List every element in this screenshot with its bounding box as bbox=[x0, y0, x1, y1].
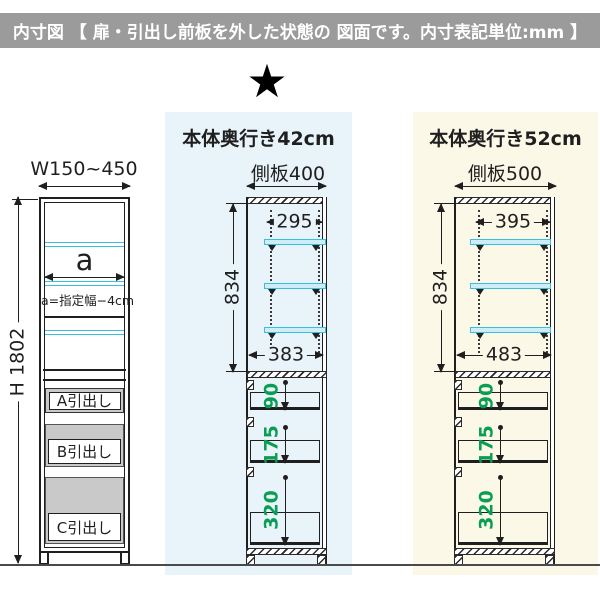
depth42-shelf-2 bbox=[264, 283, 326, 289]
depth42-inner-top-dim: 295 bbox=[267, 222, 322, 223]
shelf-width-var: a bbox=[45, 245, 124, 277]
depth42-top-panel bbox=[246, 197, 327, 204]
depth42-rail-a bbox=[246, 380, 254, 390]
depth42-drawer-a-dim bbox=[285, 382, 286, 410]
depth42-inner-height-value: 834 bbox=[224, 264, 243, 310]
depth52-drawer-c-dim bbox=[500, 477, 501, 545]
depth52-drawer-a-dim bbox=[500, 382, 501, 410]
depth42-inner-top-value: 295 bbox=[273, 213, 315, 232]
depth52-shelf-2 bbox=[470, 283, 551, 289]
diagram-canvas: 内寸図 【 扉・引出し前板を外した状態の 図面です。内寸表記単位:mm 】 ★ … bbox=[0, 0, 600, 600]
depth42-drawer-c-dim bbox=[285, 477, 286, 545]
depth52-rail-c bbox=[454, 467, 462, 477]
height-dim-label: H 1802 bbox=[9, 323, 28, 402]
depth42-title: 本体奥行き42cm bbox=[165, 112, 352, 151]
depth42-bottom-panel bbox=[246, 548, 327, 555]
depth42-shelf-3 bbox=[264, 327, 326, 333]
drawer-a-front: A引出し bbox=[45, 388, 124, 413]
depth52-inner-bottom-dim: 483 bbox=[457, 355, 551, 356]
drawer-c-label: C引出し bbox=[48, 513, 121, 541]
fixed-shelf-line bbox=[45, 316, 124, 318]
drawer-c-front: C引出し bbox=[45, 477, 124, 544]
depth52-panel-label: 側板500 bbox=[455, 164, 555, 185]
depth52-drawer-b-dim bbox=[500, 427, 501, 463]
depth42-back-panel bbox=[322, 197, 327, 565]
cabinet-front-view: a a=指定幅−4cm A引出し B引出し C引出し bbox=[39, 197, 130, 553]
shelf-width-dim-arrow bbox=[45, 277, 124, 278]
depth52-inner-top-dim: 395 bbox=[476, 222, 550, 223]
depth52-inner-top-value: 395 bbox=[492, 213, 534, 232]
shelf-width-note: a=指定幅−4cm bbox=[41, 294, 128, 308]
header-bar: 内寸図 【 扉・引出し前板を外した状態の 図面です。内寸表記単位:mm 】 bbox=[0, 13, 600, 48]
depth42-inner-bottom-dim: 383 bbox=[249, 355, 323, 356]
depth42-panel-dim-arrow bbox=[247, 186, 326, 187]
front-width-label: W150~450 bbox=[22, 159, 146, 180]
depth52-shelf-1 bbox=[470, 239, 551, 245]
depth52-divider-panel bbox=[455, 371, 551, 378]
depth52-title: 本体奥行き52cm bbox=[413, 112, 598, 151]
depth52-drawer-a-depth: 90 bbox=[478, 382, 497, 410]
depth52-rail-a bbox=[454, 380, 462, 390]
depth52-shelf-3 bbox=[470, 327, 551, 333]
depth42-drawer-a-depth: 90 bbox=[263, 382, 282, 410]
front-width-dim-arrow bbox=[39, 186, 130, 187]
depth52-top-panel bbox=[454, 197, 555, 204]
depth52-inner-height-value: 834 bbox=[432, 264, 451, 310]
divider-line-1 bbox=[43, 369, 126, 371]
drawer-a-label: A引出し bbox=[49, 392, 121, 410]
depth42-divider-panel bbox=[247, 371, 327, 378]
star-icon: ★ bbox=[238, 56, 296, 106]
floor-line bbox=[0, 564, 600, 566]
drawer-b-label: B引出し bbox=[48, 439, 121, 464]
depth42-inner-bottom-value: 383 bbox=[265, 346, 307, 365]
shelf-line-2 bbox=[45, 281, 124, 286]
depth42-rail-c bbox=[246, 467, 254, 477]
divider-line-2 bbox=[43, 379, 126, 381]
depth52-bottom-panel bbox=[454, 548, 555, 555]
depth42-rail-b bbox=[246, 417, 254, 427]
shelf-line-3 bbox=[45, 330, 124, 335]
depth52-drawer-b-depth: 175 bbox=[478, 424, 497, 466]
depth42-shelf-1 bbox=[264, 239, 326, 245]
depth42-drawer-b-dim bbox=[285, 427, 286, 463]
depth52-inner-bottom-value: 483 bbox=[483, 346, 525, 365]
depth42-drawer-b-depth: 175 bbox=[263, 424, 282, 466]
drawer-b-front: B引出し bbox=[45, 424, 124, 467]
depth52-panel-dim-arrow bbox=[455, 186, 556, 187]
depth52-rail-b bbox=[454, 417, 462, 427]
depth42-drawer-c-depth: 320 bbox=[263, 489, 282, 531]
depth52-back-panel bbox=[550, 197, 555, 565]
header-title: 内寸図 【 扉・引出し前板を外した状態の 図面です。内寸表記単位:mm 】 bbox=[13, 18, 587, 43]
depth52-drawer-c-depth: 320 bbox=[478, 489, 497, 531]
